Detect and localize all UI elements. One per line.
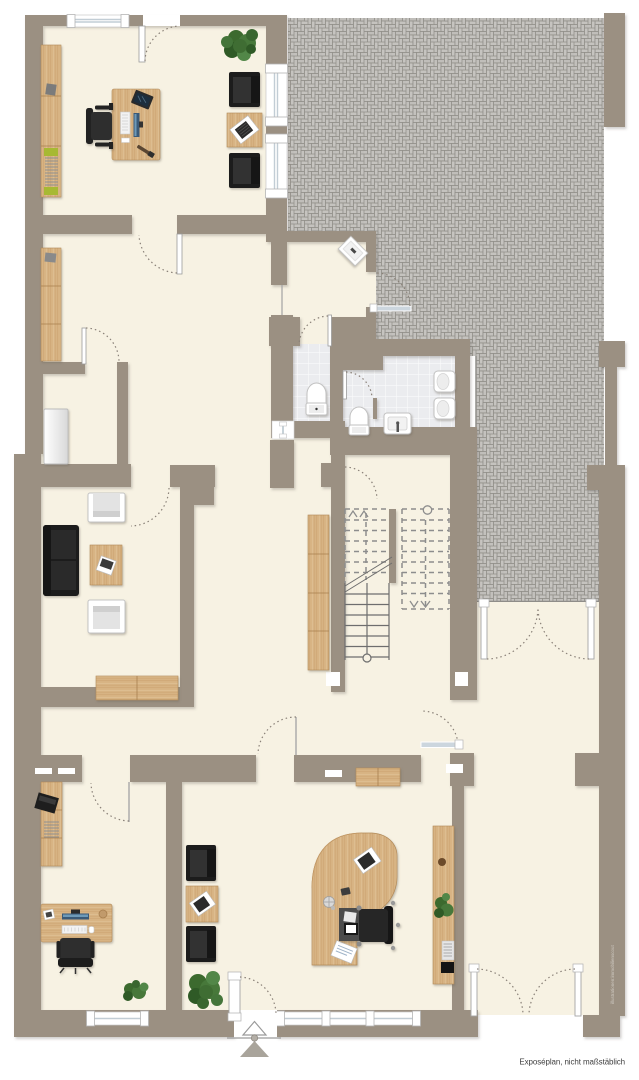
svg-text:Exposéplan, nicht maßstäblich: Exposéplan, nicht maßstäblich — [519, 1058, 625, 1067]
svg-text:illustrationen:immobilienscout: illustrationen:immobilienscout — [610, 944, 615, 1004]
